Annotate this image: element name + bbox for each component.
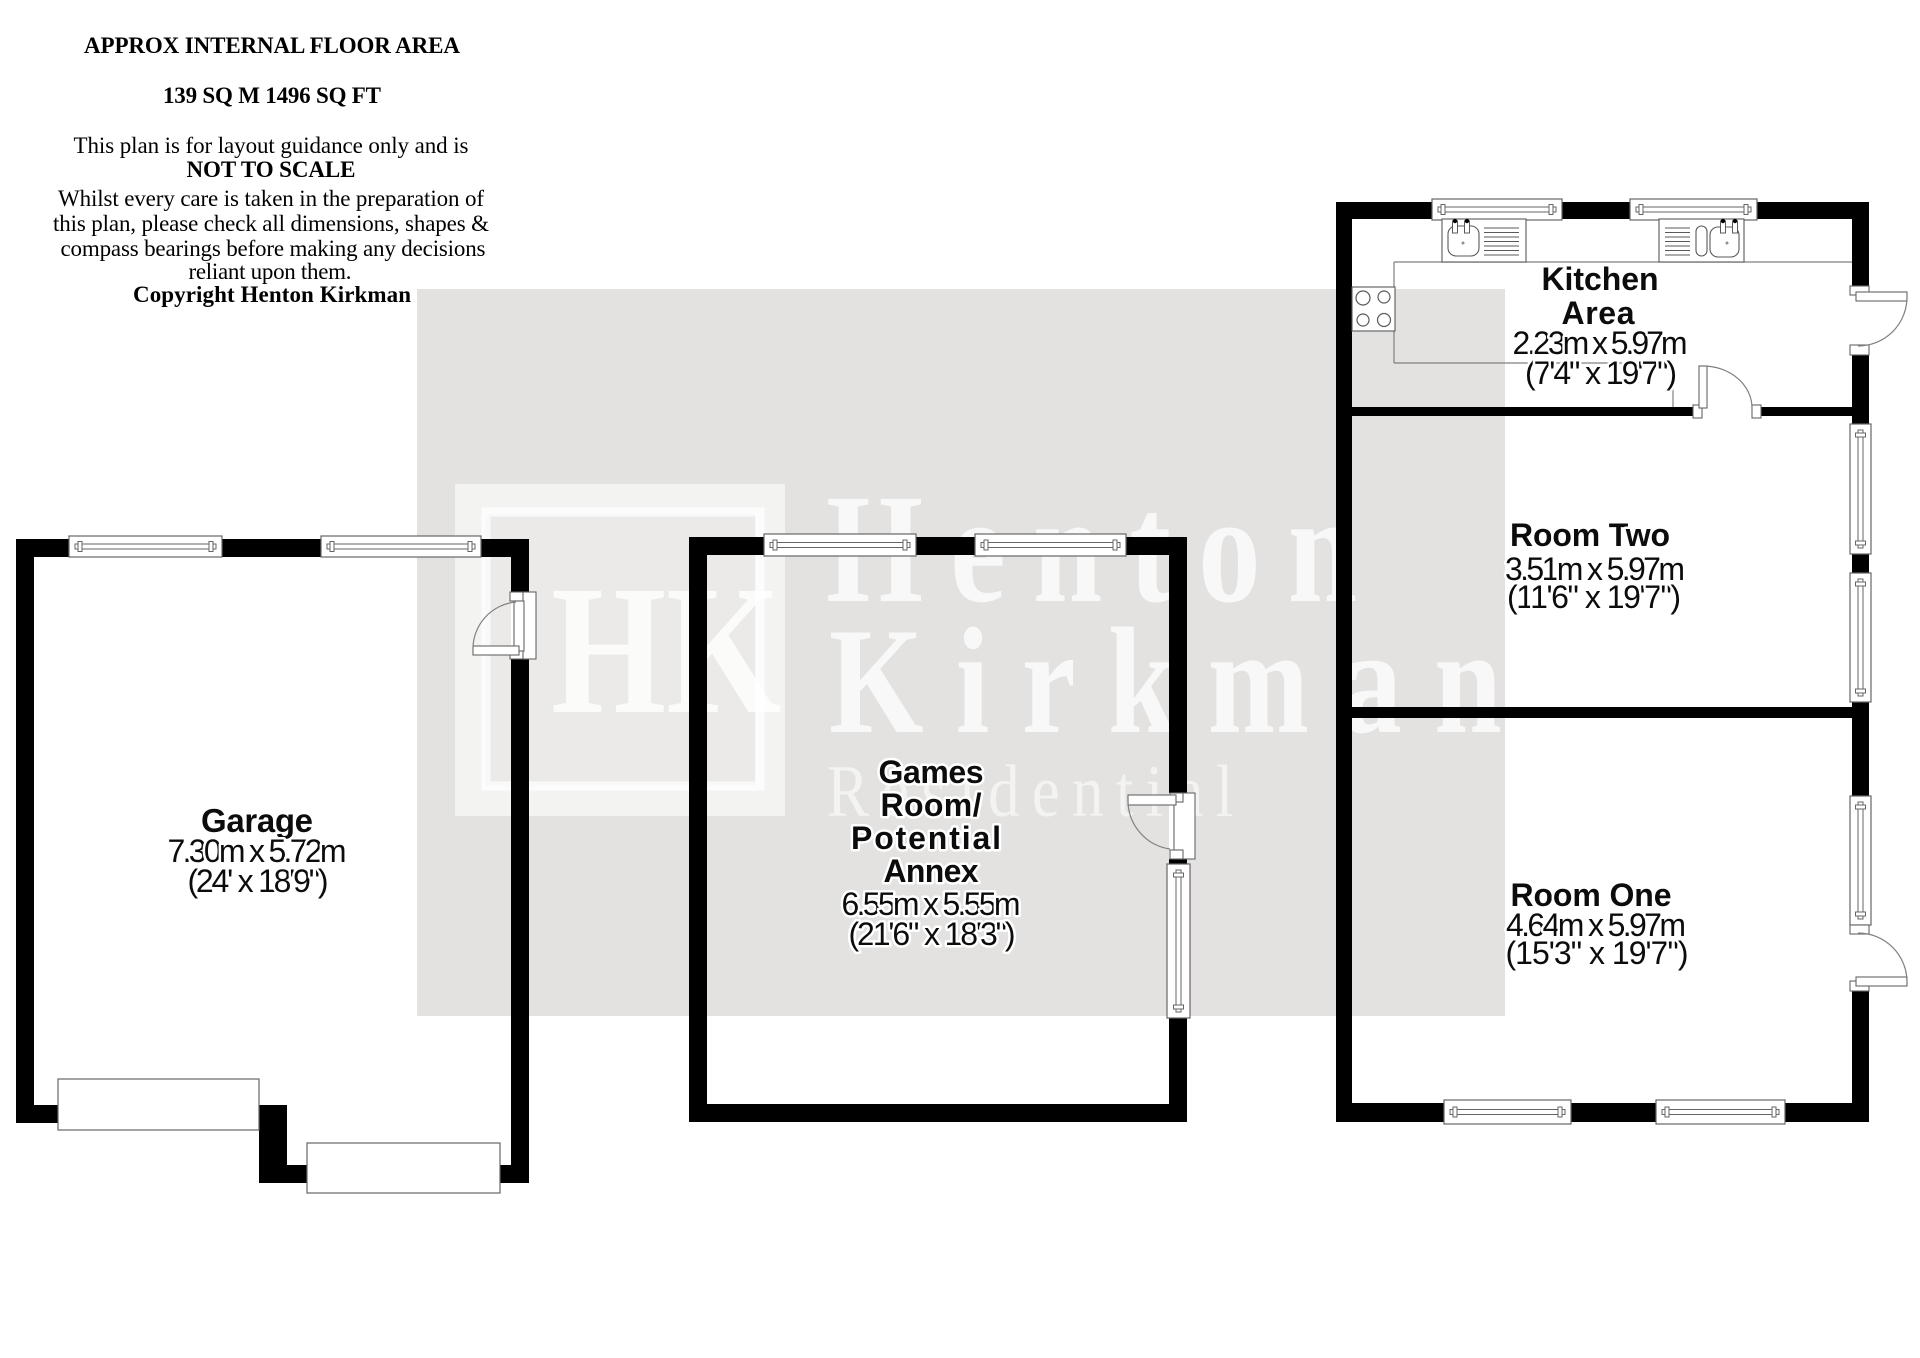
svg-text:(7'4" x 19'7"): (7'4" x 19'7"): [1525, 355, 1677, 391]
svg-text:Kitchen: Kitchen: [1542, 261, 1659, 297]
svg-text:HK: HK: [551, 549, 781, 753]
svg-text:Copyright Henton Kirkman: Copyright Henton Kirkman: [133, 282, 411, 307]
svg-text:this plan, please check all di: this plan, please check all dimensions, …: [53, 211, 489, 236]
svg-text:APPROX INTERNAL FLOOR AREA: APPROX INTERNAL FLOOR AREA: [84, 33, 460, 58]
svg-text:Games: Games: [879, 754, 984, 790]
svg-text:Room/: Room/: [881, 787, 982, 823]
svg-text:(15'3" x 19'7"): (15'3" x 19'7"): [1506, 935, 1689, 971]
svg-text:(11'6" x 19'7"): (11'6" x 19'7"): [1507, 579, 1681, 615]
svg-text:139 SQ M 1496 SQ FT: 139 SQ M 1496 SQ FT: [163, 83, 381, 108]
svg-text:NOT TO SCALE: NOT TO SCALE: [187, 157, 356, 182]
svg-text:(24' x 18'9"): (24' x 18'9"): [188, 863, 329, 899]
svg-text:Whilst every care is taken in: Whilst every care is taken in the prepar…: [58, 186, 484, 211]
svg-text:Annex: Annex: [884, 853, 979, 889]
svg-text:reliant upon them.: reliant upon them.: [189, 259, 352, 284]
svg-text:This plan is for layout guidan: This plan is for layout guidance only an…: [74, 133, 469, 158]
svg-text:(21'6" x 18'3"): (21'6" x 18'3"): [849, 916, 1016, 952]
svg-text:Room Two: Room Two: [1510, 517, 1670, 553]
svg-text:compass bearings before making: compass bearings before making any decis…: [61, 236, 486, 261]
